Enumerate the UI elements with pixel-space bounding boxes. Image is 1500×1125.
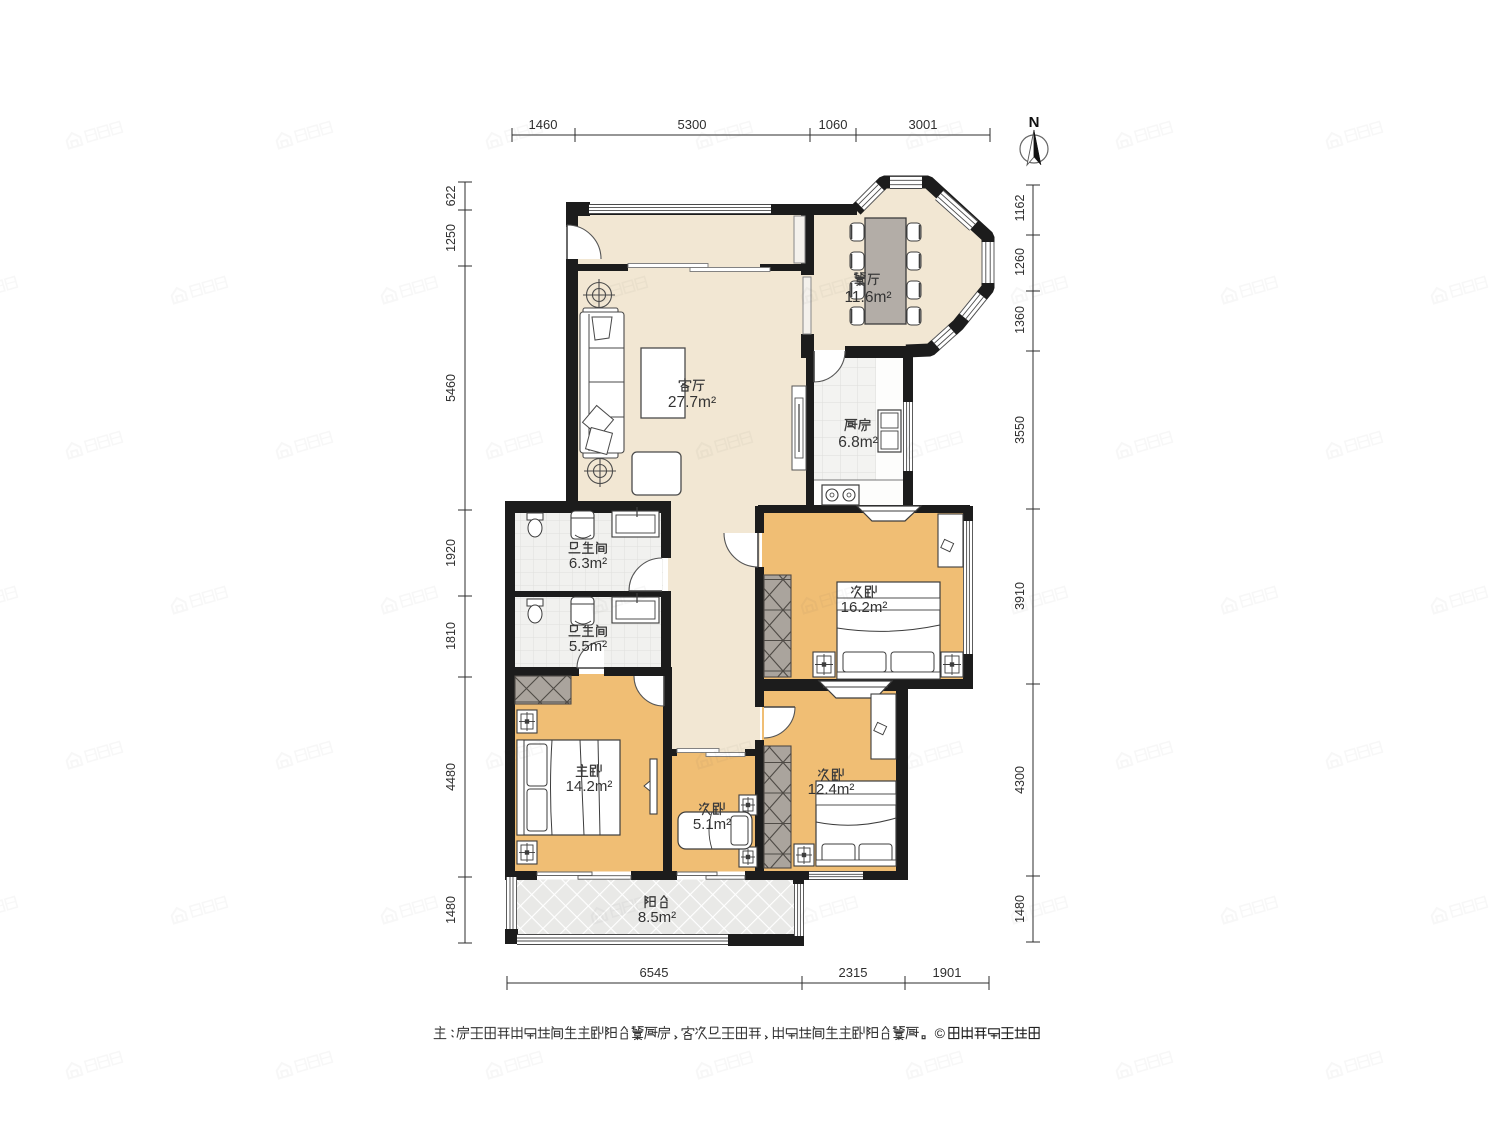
svg-text:5300: 5300 — [678, 117, 707, 132]
svg-text:12.4m²: 12.4m² — [808, 781, 855, 798]
svg-text:27.7m²: 27.7m² — [668, 394, 716, 411]
svg-text:622: 622 — [444, 186, 458, 207]
svg-text:1260: 1260 — [1013, 248, 1027, 276]
svg-text:1901: 1901 — [933, 965, 962, 980]
svg-text:16.2m²: 16.2m² — [841, 599, 888, 616]
svg-text:5.1m²: 5.1m² — [693, 816, 731, 833]
svg-text:14.2m²: 14.2m² — [566, 778, 613, 795]
svg-text:N: N — [1029, 114, 1040, 131]
svg-text:2315: 2315 — [839, 965, 868, 980]
svg-text:1810: 1810 — [444, 622, 458, 650]
svg-text:6545: 6545 — [640, 965, 669, 980]
svg-text:1480: 1480 — [444, 896, 458, 924]
svg-text:6.8m²: 6.8m² — [838, 434, 878, 451]
svg-text:©: © — [935, 1025, 946, 1041]
svg-text:5460: 5460 — [444, 374, 458, 402]
svg-text:1162: 1162 — [1013, 195, 1027, 222]
svg-text:1250: 1250 — [444, 224, 458, 252]
svg-text:4300: 4300 — [1013, 766, 1027, 794]
svg-text:1460: 1460 — [529, 117, 558, 132]
svg-text:3550: 3550 — [1013, 416, 1027, 444]
svg-text:6.3m²: 6.3m² — [569, 555, 607, 572]
svg-text:8.5m²: 8.5m² — [638, 909, 676, 926]
svg-text:1920: 1920 — [444, 539, 458, 567]
svg-text:1060: 1060 — [819, 117, 848, 132]
svg-text:11.6m²: 11.6m² — [844, 289, 891, 306]
svg-text:1360: 1360 — [1013, 306, 1027, 334]
svg-text:4480: 4480 — [444, 763, 458, 791]
svg-text:5.5m²: 5.5m² — [569, 638, 607, 655]
